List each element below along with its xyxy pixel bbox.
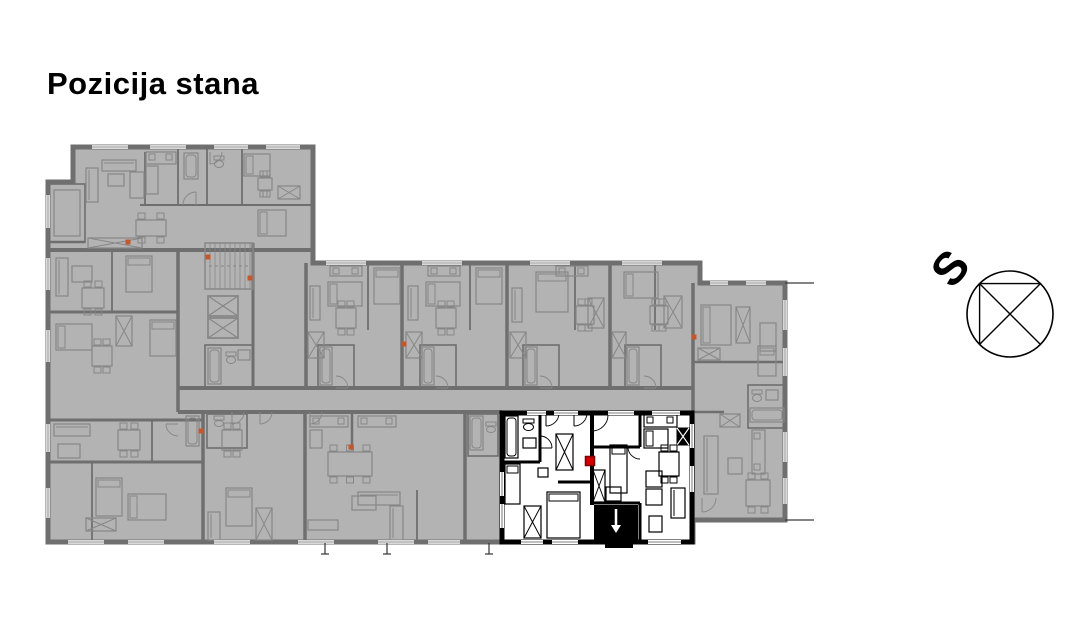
entrance-dot: [349, 445, 354, 450]
apartment-marker: [586, 457, 595, 466]
entrance-dot: [248, 276, 253, 281]
compass: S: [920, 240, 1053, 357]
entrance-dot: [692, 335, 697, 340]
entrance-dot: [402, 342, 407, 347]
entrance-dot: [206, 255, 211, 260]
floor-plan-svg: S: [0, 0, 1089, 640]
compass-north-label: S: [920, 240, 980, 297]
page: Pozicija stana S: [0, 0, 1089, 640]
building-plan: [48, 147, 814, 554]
highlighted-apartment: [502, 413, 692, 548]
shaft-block: [605, 542, 633, 548]
entrance-dot: [126, 240, 131, 245]
entrance-dot: [199, 429, 204, 434]
